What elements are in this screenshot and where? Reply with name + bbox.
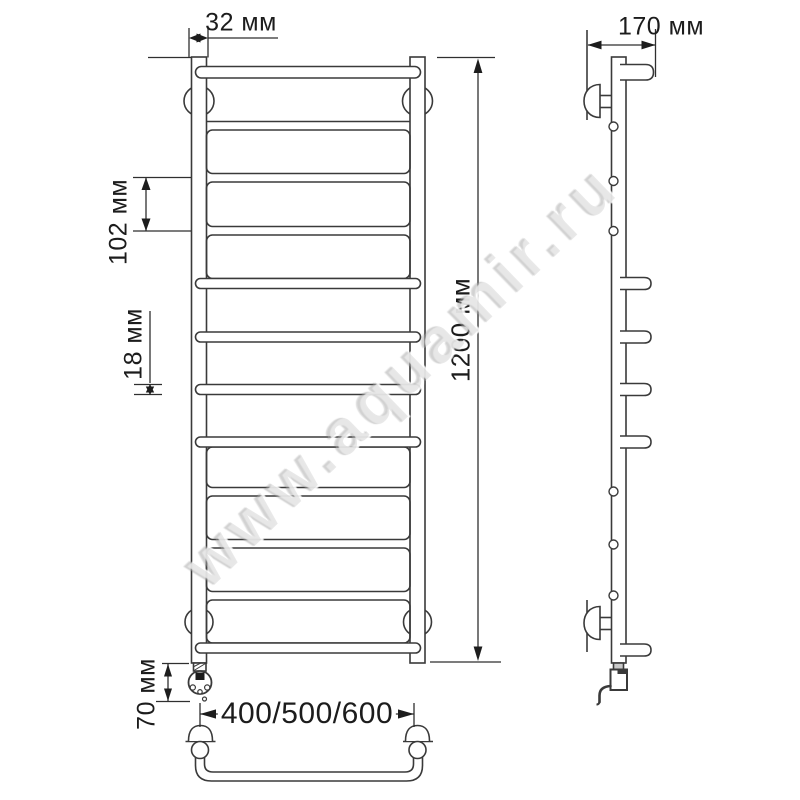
towel-rail-technical-drawing: 32 мм 170 мм 102 мм 18 мм 1200 мм 70 мм … — [0, 0, 800, 800]
front-rung-gaps — [207, 122, 411, 644]
side-collector-tube — [612, 57, 627, 663]
dim-label-height: 1200 мм — [446, 278, 477, 382]
dim-label-depth: 170 мм — [618, 13, 704, 42]
dim-label-rung-diameter: 18 мм — [120, 308, 149, 380]
bottom-view-collector-sections — [192, 742, 427, 759]
front-wall-brackets — [184, 86, 433, 636]
side-view — [584, 30, 654, 705]
dim-label-collector-width: 32 мм — [205, 9, 277, 38]
dim-rung-pitch-102 — [133, 178, 191, 232]
side-wall-brackets — [584, 85, 612, 640]
front-protruding-rungs — [196, 67, 421, 654]
bottom-view — [186, 726, 434, 782]
heating-element — [611, 663, 628, 690]
bottom-view-u-tube — [196, 749, 423, 781]
power-cable-icon — [597, 686, 611, 705]
dim-label-rung-pitch: 102 мм — [105, 179, 134, 265]
drawing-linework — [0, 0, 800, 800]
dim-label-heater-stub: 70 мм — [133, 658, 162, 730]
dim-label-width-options: 400/500/600 — [218, 697, 396, 731]
front-view — [184, 57, 433, 701]
front-collectors — [192, 57, 426, 663]
electric-plug-symbol — [189, 663, 212, 701]
